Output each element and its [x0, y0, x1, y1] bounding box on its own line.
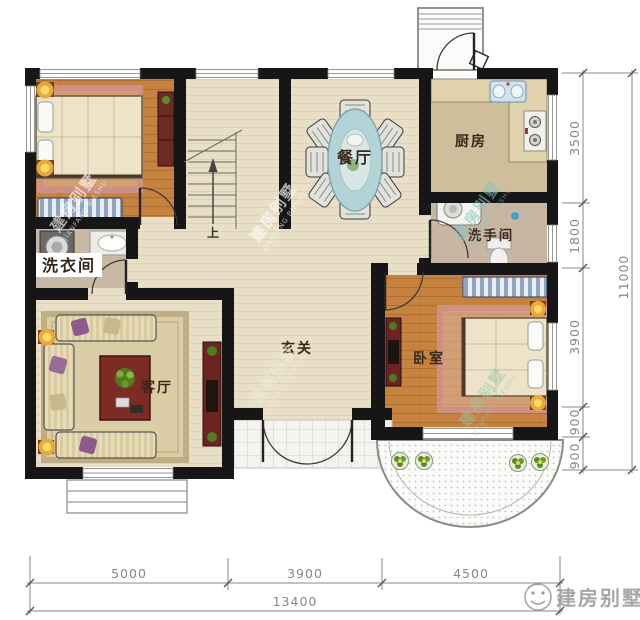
label-dining: 餐厅 [336, 148, 373, 167]
floor-plan-image: 5000 3900 4500 13400 3500 1800 3900 900 … [0, 0, 640, 620]
dim-right-total: 11000 [616, 255, 631, 300]
brand-logo: 建房别墅 [525, 584, 640, 610]
label-living: 客厅 [140, 379, 173, 396]
dim-bottom-1: 5000 [111, 566, 147, 581]
dim-right-2: 1800 [567, 218, 582, 254]
label-kitchen: 厨房 [455, 133, 487, 150]
logo-brand-text: 建房别墅 [556, 586, 640, 610]
dim-bottom-3: 4500 [453, 566, 489, 581]
dim-bottom-2: 3900 [287, 566, 323, 581]
label-stairs-up: 上 [207, 225, 219, 240]
dim-right-5: 900 [567, 443, 582, 470]
front-steps [67, 480, 187, 513]
label-laundry: 洗衣间 [42, 256, 96, 275]
front-round-porch [377, 440, 563, 527]
dim-right-1: 3500 [567, 120, 582, 156]
entry-tiled-porch [232, 420, 392, 468]
tv-cabinet-living [203, 342, 221, 446]
dim-bottom-total: 13400 [273, 594, 318, 609]
dim-right-4: 900 [567, 409, 582, 436]
dim-right-3: 3900 [567, 319, 582, 355]
floor-plan-svg: 5000 3900 4500 13400 3500 1800 3900 900 … [0, 0, 640, 620]
label-bedroom: 卧室 [413, 350, 445, 367]
